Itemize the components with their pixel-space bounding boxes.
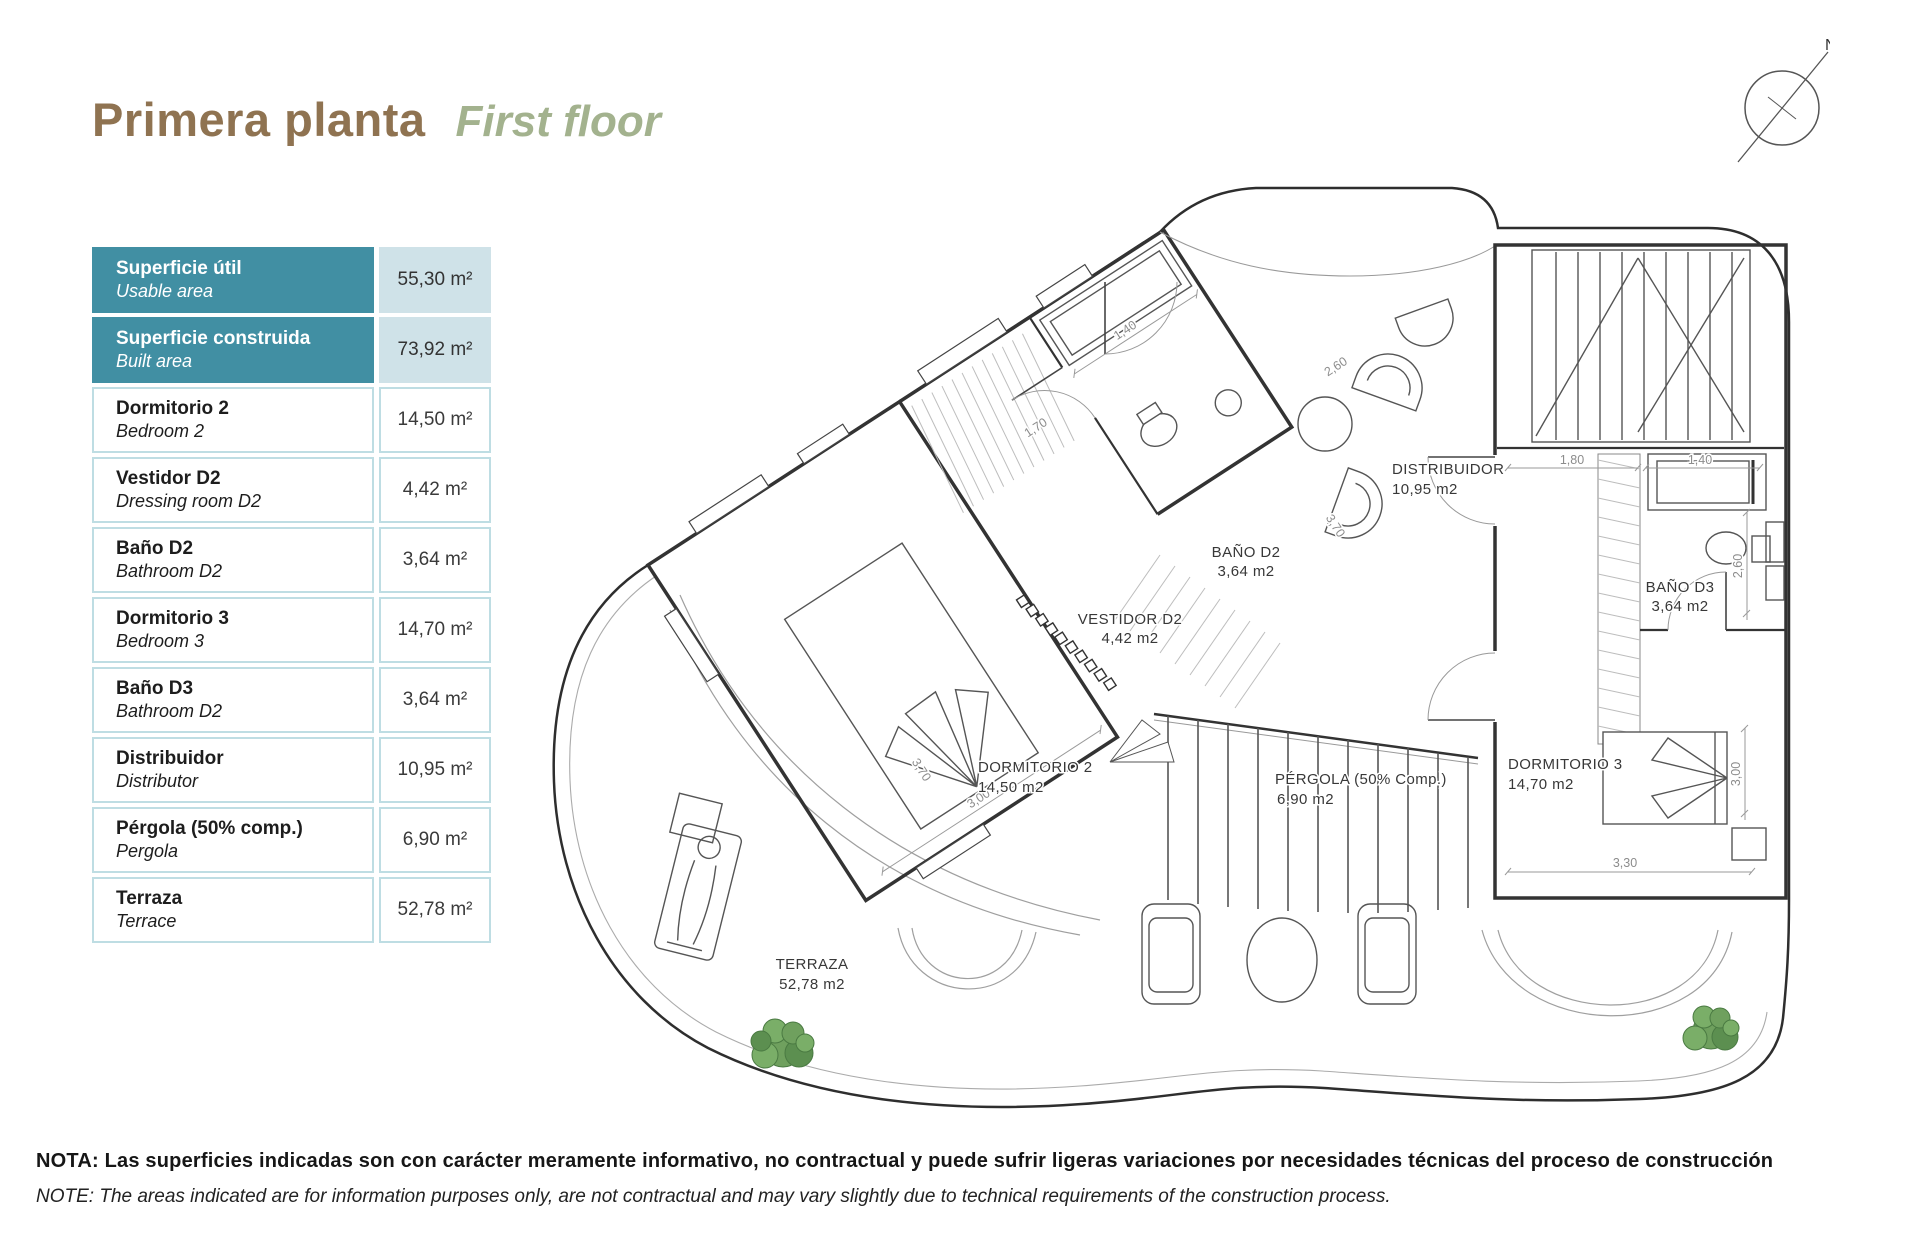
- room-label-bathroom-d3: BAÑO D3: [1646, 579, 1715, 596]
- note-spanish: NOTA: Las superficies indicadas son con …: [36, 1150, 1786, 1173]
- window: [797, 424, 849, 463]
- pergola: [1110, 714, 1478, 913]
- terrace-armchair: [1142, 904, 1200, 1004]
- row-label-en: Pergola: [116, 841, 372, 863]
- table-row-pergola: Pérgola (50% comp.) Pergola: [92, 807, 374, 873]
- row-label-en: Bedroom 3: [116, 631, 372, 653]
- table-value-bathroom-d2: 3,64 m²: [379, 527, 491, 593]
- curved-wall: [1160, 232, 1495, 276]
- sun-lounger: [653, 793, 742, 961]
- room-label-bathroom-d2: BAÑO D2: [1212, 544, 1281, 561]
- table-row-terrace: Terraza Terrace: [92, 877, 374, 943]
- row-label-es: Pérgola (50% comp.): [116, 817, 372, 841]
- room-area-bedroom2: 14,50 m2: [978, 779, 1044, 796]
- table-value-bedroom-2: 14,50 m²: [379, 387, 491, 453]
- room-area-terrace: 52,78 m2: [779, 976, 845, 993]
- dimension-label: 1,40: [1688, 453, 1712, 467]
- row-label-en: Bathroom D2: [116, 701, 372, 723]
- row-label-en: Built area: [116, 351, 372, 373]
- terrace-boundary: [554, 188, 1789, 1107]
- bathroom-d3-fixtures: [1706, 522, 1784, 600]
- door-arc: [1428, 653, 1495, 720]
- bedroom2-wing: 3,00 1,40 1,70: [628, 217, 1389, 919]
- dimension-label: 2,60: [1731, 554, 1745, 578]
- window: [689, 475, 769, 534]
- table-value-bedroom-3: 14,70 m²: [379, 597, 491, 663]
- room-area-bedroom3: 14,70 m2: [1508, 776, 1574, 793]
- room-label-bedroom3: DORMITORIO 3: [1508, 756, 1623, 773]
- dimension-label: 2,60: [1322, 354, 1350, 379]
- table-value-dressing-room: 4,42 m²: [379, 457, 491, 523]
- terrace-table: [1247, 918, 1317, 1002]
- room-label-vestidor: VESTIDOR D2: [1078, 611, 1182, 628]
- row-label-es: Dormitorio 2: [116, 397, 372, 421]
- footer-notes: NOTA: Las superficies indicadas son con …: [36, 1150, 1786, 1208]
- row-label-es: Distribuidor: [116, 747, 372, 771]
- row-label-en: Bedroom 2: [116, 421, 372, 443]
- table-value-built-area: 73,92 m²: [379, 317, 491, 383]
- row-label-es: Vestidor D2: [116, 467, 372, 491]
- room-area-pergola: 6,90 m2: [1277, 791, 1334, 808]
- terrace-armchair: [1358, 904, 1416, 1004]
- table-row-bedroom-2: Dormitorio 2 Bedroom 2: [92, 387, 374, 453]
- room-area-distributor: 10,95 m2: [1392, 481, 1458, 498]
- room-area-vestidor: 4,42 m2: [1102, 630, 1159, 647]
- dimension-label: 3,30: [1613, 856, 1637, 870]
- row-label-es: Superficie útil: [116, 257, 372, 281]
- room-label-terrace: TERRAZA: [776, 956, 849, 973]
- table-value-bathroom-d3: 3,64 m²: [379, 667, 491, 733]
- row-label-es: Baño D3: [116, 677, 372, 701]
- north-label: N: [1825, 37, 1830, 54]
- row-label-en: Usable area: [116, 281, 372, 303]
- row-label-en: Bathroom D2: [116, 561, 372, 583]
- floor-plan-drawing: N: [520, 20, 1830, 1130]
- table-value-usable-area: 55,30 m²: [379, 247, 491, 313]
- table-row-bathroom-d3: Baño D3 Bathroom D2: [92, 667, 374, 733]
- tree: [751, 1019, 814, 1068]
- table-value-pergola: 6,90 m²: [379, 807, 491, 873]
- room-area-bathroom-d3: 3,64 m2: [1652, 598, 1709, 615]
- row-label-es: Baño D2: [116, 537, 372, 561]
- table-value-distributor: 10,95 m²: [379, 737, 491, 803]
- row-label-en: Dressing room D2: [116, 491, 372, 513]
- note-english: NOTE: The areas indicated are for inform…: [36, 1186, 1786, 1208]
- room-label-bedroom2: DORMITORIO 2: [978, 759, 1093, 776]
- table-row-built-area: Superficie construida Built area: [92, 317, 374, 383]
- table-row-bathroom-d2: Baño D2 Bathroom D2: [92, 527, 374, 593]
- room-label-distributor: DISTRIBUIDOR: [1392, 461, 1504, 478]
- dimension-label: 3,00: [1729, 762, 1743, 786]
- area-table: Superficie útil Usable area 55,30 m² Sup…: [92, 247, 491, 943]
- wardrobe-strip: [1598, 454, 1640, 744]
- row-label-es: Terraza: [116, 887, 372, 911]
- table-value-terrace: 52,78 m²: [379, 877, 491, 943]
- table-row-dressing-room: Vestidor D2 Dressing room D2: [92, 457, 374, 523]
- right-wing: 1,80 1,40 2,60 3,00 3,30: [1428, 245, 1786, 898]
- staircase: [1532, 250, 1750, 442]
- window: [916, 824, 990, 878]
- row-label-es: Superficie construida: [116, 327, 372, 351]
- room-label-pergola: PÉRGOLA (50% Comp.): [1275, 771, 1447, 788]
- bed-bedroom3: [1603, 732, 1766, 860]
- room-area-bathroom-d2: 3,64 m2: [1218, 563, 1275, 580]
- row-label-en: Distributor: [116, 771, 372, 793]
- dimension-label: 1,80: [1560, 453, 1584, 467]
- row-label-en: Terrace: [116, 911, 372, 933]
- table-row-usable-area: Superficie útil Usable area: [92, 247, 374, 313]
- table-row-distributor: Distribuidor Distributor: [92, 737, 374, 803]
- tree: [1683, 1006, 1739, 1050]
- north-compass: N: [1738, 37, 1830, 162]
- table-row-bedroom-3: Dormitorio 3 Bedroom 3: [92, 597, 374, 663]
- floor-plan: N: [520, 20, 1830, 1130]
- title-spanish: Primera planta: [92, 92, 426, 147]
- row-label-es: Dormitorio 3: [116, 607, 372, 631]
